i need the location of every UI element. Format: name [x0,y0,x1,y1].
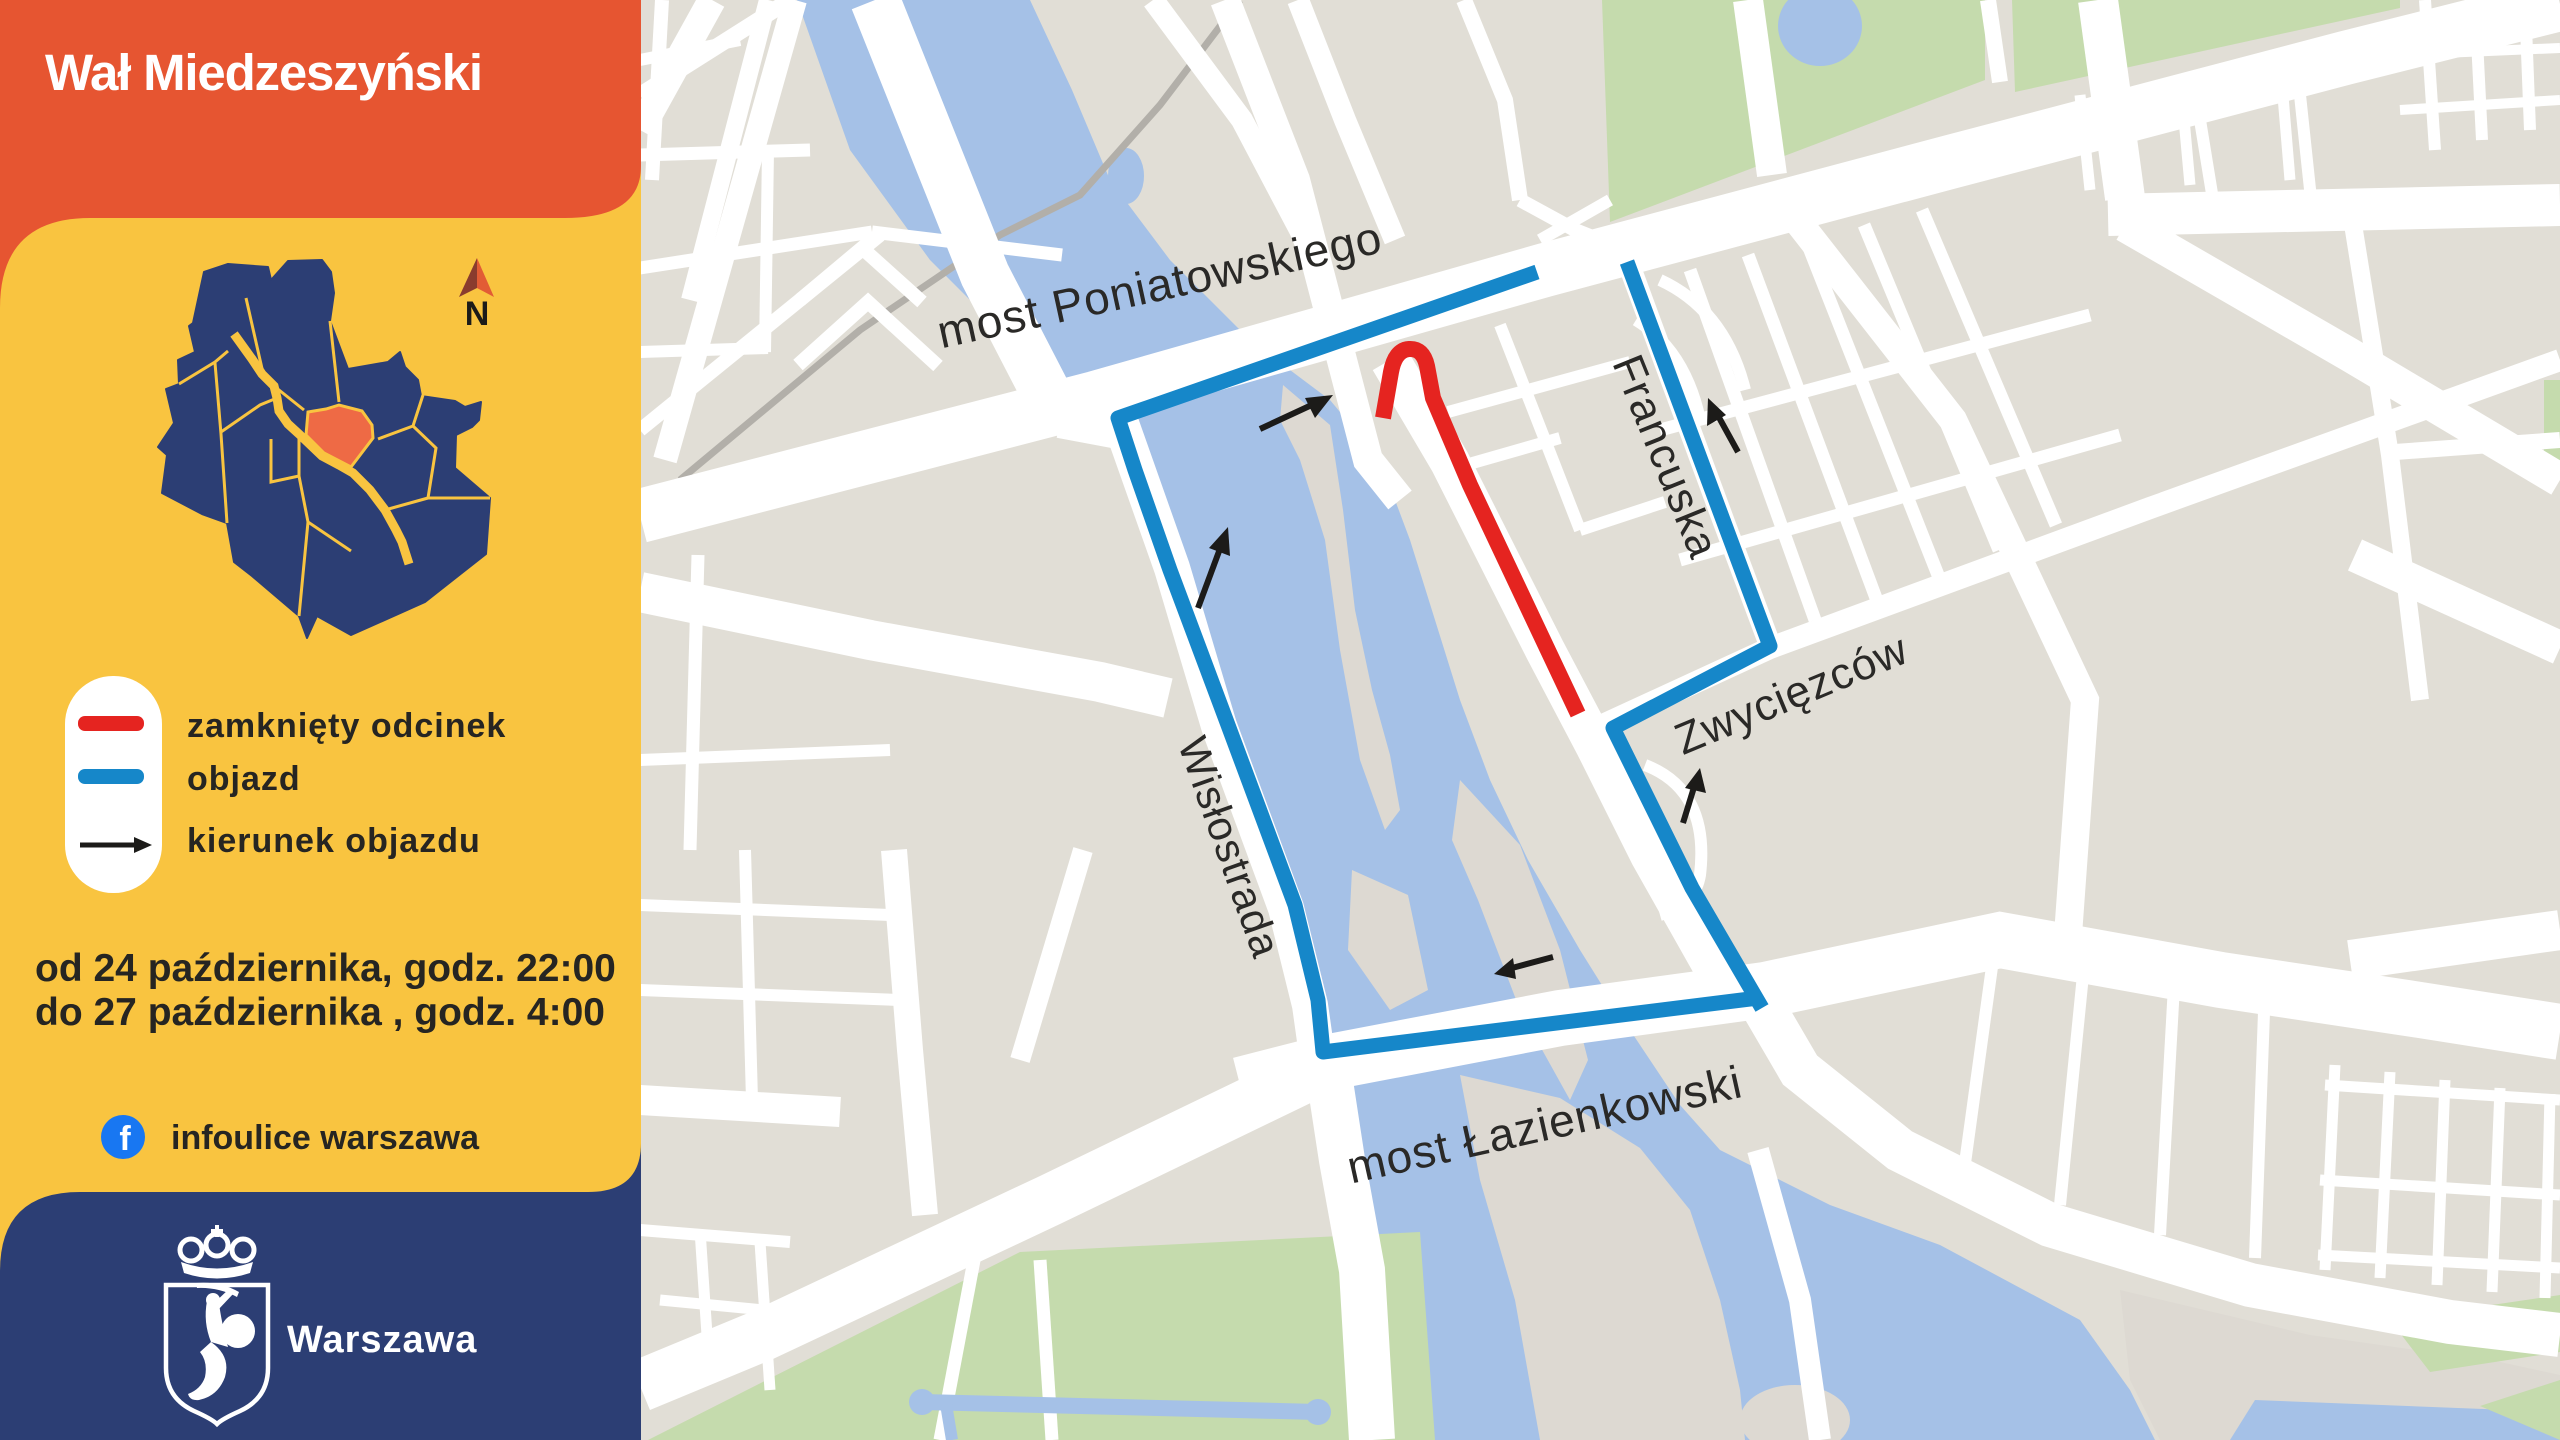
svg-text:Wał Miedzeszyński: Wał Miedzeszyński [45,44,482,101]
svg-text:kierunek objazdu: kierunek objazdu [187,822,481,860]
svg-text:objazd: objazd [187,760,301,798]
svg-text:do 27 października , godz. 4:0: do 27 października , godz. 4:00 [35,991,605,1034]
svg-text:f: f [119,1120,131,1158]
svg-text:zamknięty odcinek: zamknięty odcinek [187,707,506,745]
svg-text:od 24 października, godz. 22:0: od 24 października, godz. 22:00 [35,947,616,990]
svg-text:Warszawa: Warszawa [287,1319,477,1361]
svg-text:infoulice warszawa: infoulice warszawa [171,1119,480,1157]
svg-text:N: N [465,295,490,333]
